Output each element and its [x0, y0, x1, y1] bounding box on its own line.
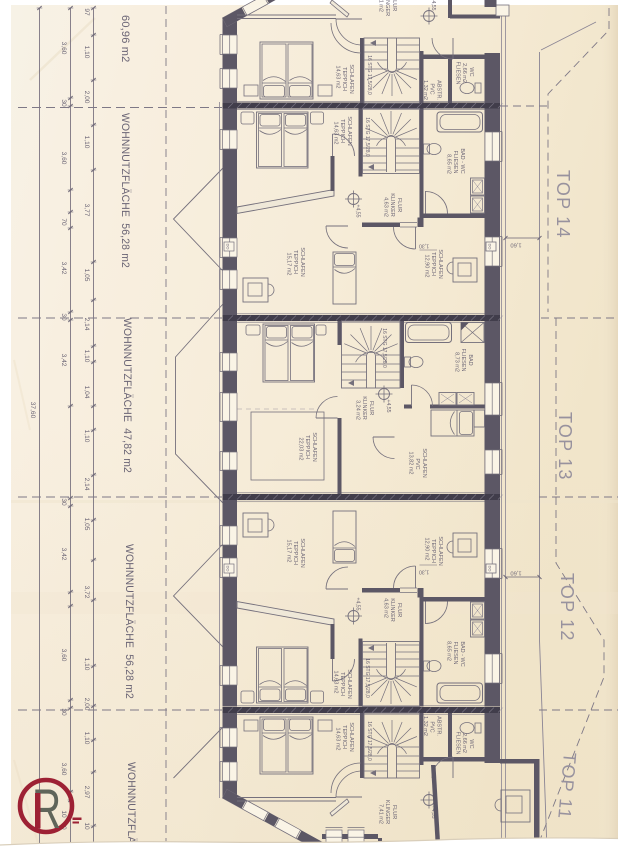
- svg-text:3,77: 3,77: [83, 204, 90, 217]
- svg-text:8,65 m2: 8,65 m2: [446, 154, 452, 174]
- svg-text:TOP 13: TOP 13: [555, 412, 575, 481]
- svg-text:FLIESEN: FLIESEN: [455, 62, 461, 85]
- svg-text:10: 10: [83, 822, 90, 830]
- svg-text:SCHLAFEN: SCHLAFEN: [348, 64, 354, 93]
- svg-text:WOHNNUTZFLÄCHE 56,28 m2: WOHNNUTZFLÄCHE 56,28 m2: [119, 113, 131, 268]
- svg-text:ABSTR.: ABSTR.: [436, 716, 442, 736]
- svg-text:TEPPICH: TEPPICH: [292, 541, 298, 565]
- svg-text:DO: DO: [488, 566, 493, 572]
- svg-text:2,14: 2,14: [83, 478, 90, 491]
- svg-text:TEPPICH: TEPPICH: [341, 67, 347, 91]
- svg-text:SCHLAFEN: SCHLAFEN: [346, 116, 352, 145]
- svg-text:PVC: PVC: [429, 721, 435, 732]
- svg-text:TEPPICH: TEPPICH: [430, 252, 436, 276]
- svg-text:SCHLAFEN: SCHLAFEN: [299, 538, 305, 567]
- svg-text:7,41 m2: 7,41 m2: [378, 0, 384, 12]
- svg-text:WOHNNUTZFLÄCHE 47,82 m2: WOHNNUTZFLÄCHE 47,82 m2: [121, 318, 133, 473]
- svg-text:FLUR: FLUR: [396, 603, 402, 617]
- svg-text:1,30: 1,30: [419, 243, 429, 249]
- svg-text:2,66 m2: 2,66 m2: [461, 733, 467, 753]
- svg-text:3,72: 3,72: [83, 586, 90, 599]
- svg-text:SCHLAFEN: SCHLAFEN: [311, 432, 317, 461]
- svg-text:1,60: 1,60: [510, 242, 521, 248]
- svg-text:16 STG 17,5/28,0: 16 STG 17,5/28,0: [366, 721, 372, 761]
- svg-text:DO: DO: [226, 566, 231, 572]
- svg-text:30: 30: [60, 708, 67, 716]
- svg-text:BAD - WC: BAD - WC: [459, 641, 465, 666]
- svg-text:+4,55: +4,55: [385, 399, 391, 412]
- svg-text:1,10: 1,10: [83, 658, 90, 671]
- svg-text:WC: WC: [468, 739, 474, 748]
- svg-text:FLIESEN: FLIESEN: [460, 349, 466, 372]
- svg-text:1,10: 1,10: [83, 732, 90, 745]
- svg-text:30: 30: [60, 313, 67, 321]
- svg-text:1,05: 1,05: [83, 269, 90, 282]
- svg-text:3,42: 3,42: [60, 262, 67, 275]
- svg-text:TEPPICH: TEPPICH: [304, 435, 310, 459]
- svg-text:FLUR: FLUR: [391, 0, 397, 11]
- svg-text:12,90 m2: 12,90 m2: [424, 538, 430, 561]
- svg-text:14,63 m2: 14,63 m2: [335, 66, 341, 89]
- svg-text:KLINGER: KLINGER: [384, 0, 390, 16]
- svg-text:14,63 m2: 14,63 m2: [333, 122, 339, 145]
- svg-text:SCHLAFEN: SCHLAFEN: [346, 669, 352, 698]
- svg-text:1,04: 1,04: [83, 386, 90, 399]
- svg-text:FLUR: FLUR: [391, 805, 397, 819]
- svg-text:DO: DO: [488, 244, 493, 250]
- svg-text:FLIESEN: FLIESEN: [452, 151, 458, 174]
- svg-text:SCHLAFEN: SCHLAFEN: [299, 247, 305, 276]
- svg-text:KLINGER: KLINGER: [384, 800, 390, 824]
- svg-text:FLUR: FLUR: [368, 401, 374, 415]
- svg-text:FLIESEN: FLIESEN: [452, 642, 458, 665]
- svg-text:1,10: 1,10: [83, 350, 90, 363]
- svg-text:SCHLAFEN: SCHLAFEN: [421, 448, 427, 477]
- svg-text:WOHNNUTZFLÄCHE 56,28 m2: WOHNNUTZFLÄCHE 56,28 m2: [125, 762, 137, 850]
- svg-text:1,10: 1,10: [83, 430, 90, 443]
- svg-text:1,10: 1,10: [83, 136, 90, 149]
- svg-text:1,05: 1,05: [83, 518, 90, 531]
- svg-text:+4,55: +4,55: [355, 597, 361, 610]
- svg-text:8,73 m2: 8,73 m2: [454, 352, 460, 372]
- svg-text:SCHLAFEN: SCHLAFEN: [437, 536, 443, 565]
- svg-text:22,03 m2: 22,03 m2: [298, 438, 304, 461]
- svg-text:15,17 m2: 15,17 m2: [286, 540, 292, 563]
- svg-text:BAD - WC: BAD - WC: [459, 148, 465, 173]
- svg-text:2,66 m2: 2,66 m2: [461, 63, 467, 83]
- svg-text:3,42: 3,42: [60, 548, 67, 561]
- svg-text:TOP 12: TOP 12: [557, 573, 577, 642]
- svg-text:TEPPICH: TEPPICH: [292, 250, 298, 274]
- svg-text:WOHNNUTZFLÄCHE 56,28 m2: WOHNNUTZFLÄCHE 56,28 m2: [123, 544, 135, 699]
- svg-text:3,60: 3,60: [60, 152, 67, 165]
- svg-text:PVC: PVC: [429, 83, 435, 94]
- svg-text:PVC: PVC: [414, 458, 420, 469]
- svg-text:14,63 m2: 14,63 m2: [333, 671, 339, 694]
- svg-text:16 STG 17,5/28,0: 16 STG 17,5/28,0: [364, 658, 370, 698]
- svg-text:TOP 14: TOP 14: [553, 170, 573, 239]
- svg-text:TEPPICH: TEPPICH: [430, 539, 436, 563]
- svg-text:TEPPICH: TEPPICH: [339, 672, 345, 696]
- svg-text:BAD: BAD: [467, 354, 473, 365]
- svg-text:70: 70: [60, 218, 67, 226]
- svg-text:SCHLAFEN: SCHLAFEN: [437, 249, 443, 278]
- svg-text:8,65 m2: 8,65 m2: [446, 641, 452, 661]
- svg-text:13,82 m2: 13,82 m2: [408, 452, 414, 475]
- svg-text:FLIESEN: FLIESEN: [455, 732, 461, 755]
- svg-text:16 STG 17,5/28,0: 16 STG 17,5/28,0: [366, 55, 372, 95]
- svg-text:SCHLAFEN: SCHLAFEN: [348, 722, 354, 751]
- svg-text:2,00: 2,00: [83, 91, 90, 104]
- svg-text:1,60: 1,60: [510, 570, 521, 576]
- svg-text:3,42: 3,42: [60, 354, 67, 367]
- svg-text:7,41 m2: 7,41 m2: [378, 804, 384, 824]
- svg-text:3,60: 3,60: [60, 42, 67, 55]
- svg-text:1,30: 1,30: [419, 569, 429, 575]
- svg-text:2,00: 2,00: [83, 698, 90, 711]
- svg-text:16 STG 17,5/28,0: 16 STG 17,5/28,0: [364, 117, 370, 157]
- svg-text:WC: WC: [468, 67, 474, 76]
- svg-text:DO: DO: [226, 244, 231, 250]
- svg-text:+4,55: +4,55: [355, 204, 361, 217]
- svg-text:97: 97: [83, 8, 90, 16]
- svg-text:KLINKER: KLINKER: [389, 598, 395, 622]
- svg-text:4,63 m2: 4,63 m2: [383, 598, 389, 618]
- svg-text:ABSTR.: ABSTR.: [436, 80, 442, 100]
- svg-text:1,32 m2: 1,32 m2: [422, 716, 428, 736]
- svg-text:1,10: 1,10: [83, 46, 90, 59]
- svg-text:TEPPICH: TEPPICH: [339, 119, 345, 143]
- svg-text:FLUR: FLUR: [396, 198, 402, 212]
- svg-text:60,96 m2: 60,96 m2: [119, 15, 131, 62]
- svg-text:30: 30: [60, 498, 67, 506]
- svg-text:KLINKER: KLINKER: [389, 193, 395, 217]
- svg-text:30: 30: [60, 99, 67, 107]
- svg-text:14,63 m2: 14,63 m2: [335, 728, 341, 751]
- svg-text:+4,55: +4,55: [430, 0, 436, 11]
- svg-text:1,32 m2: 1,32 m2: [422, 80, 428, 100]
- svg-text:15,17 m2: 15,17 m2: [286, 253, 292, 276]
- svg-text:3,24 m2: 3,24 m2: [355, 400, 361, 420]
- svg-text:2,97: 2,97: [83, 786, 90, 799]
- svg-text:3,60: 3,60: [60, 649, 67, 662]
- svg-text:3,60: 3,60: [60, 763, 67, 776]
- svg-text:4,63 m2: 4,63 m2: [383, 197, 389, 217]
- svg-text:TEPPICH: TEPPICH: [341, 725, 347, 749]
- svg-text:16 STG 17,5/28,0: 16 STG 17,5/28,0: [381, 328, 387, 368]
- svg-text:37,60: 37,60: [29, 402, 36, 419]
- svg-text:12,90 m2: 12,90 m2: [424, 255, 430, 278]
- svg-text:KLINKER: KLINKER: [361, 396, 367, 420]
- svg-text:2,14: 2,14: [83, 318, 90, 331]
